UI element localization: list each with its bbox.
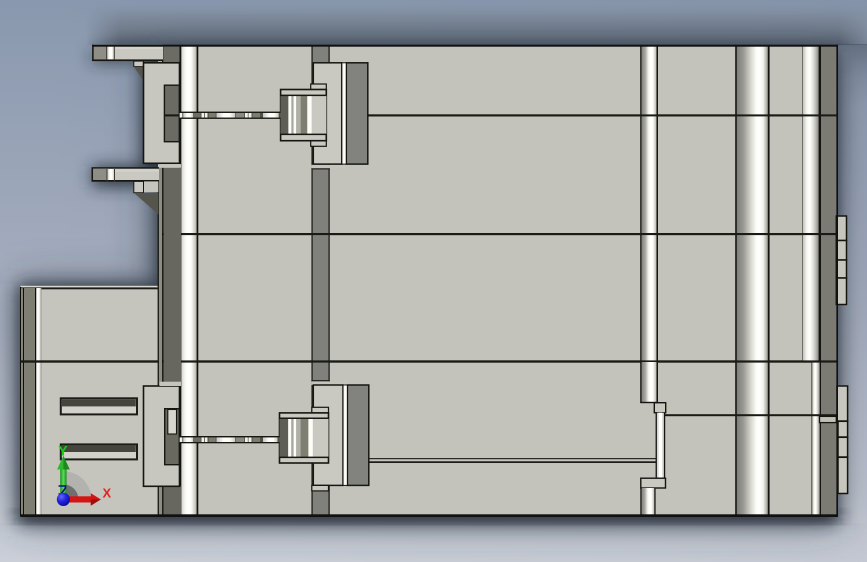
svg-text:X: X xyxy=(103,486,112,501)
svg-text:Y: Y xyxy=(58,443,68,459)
